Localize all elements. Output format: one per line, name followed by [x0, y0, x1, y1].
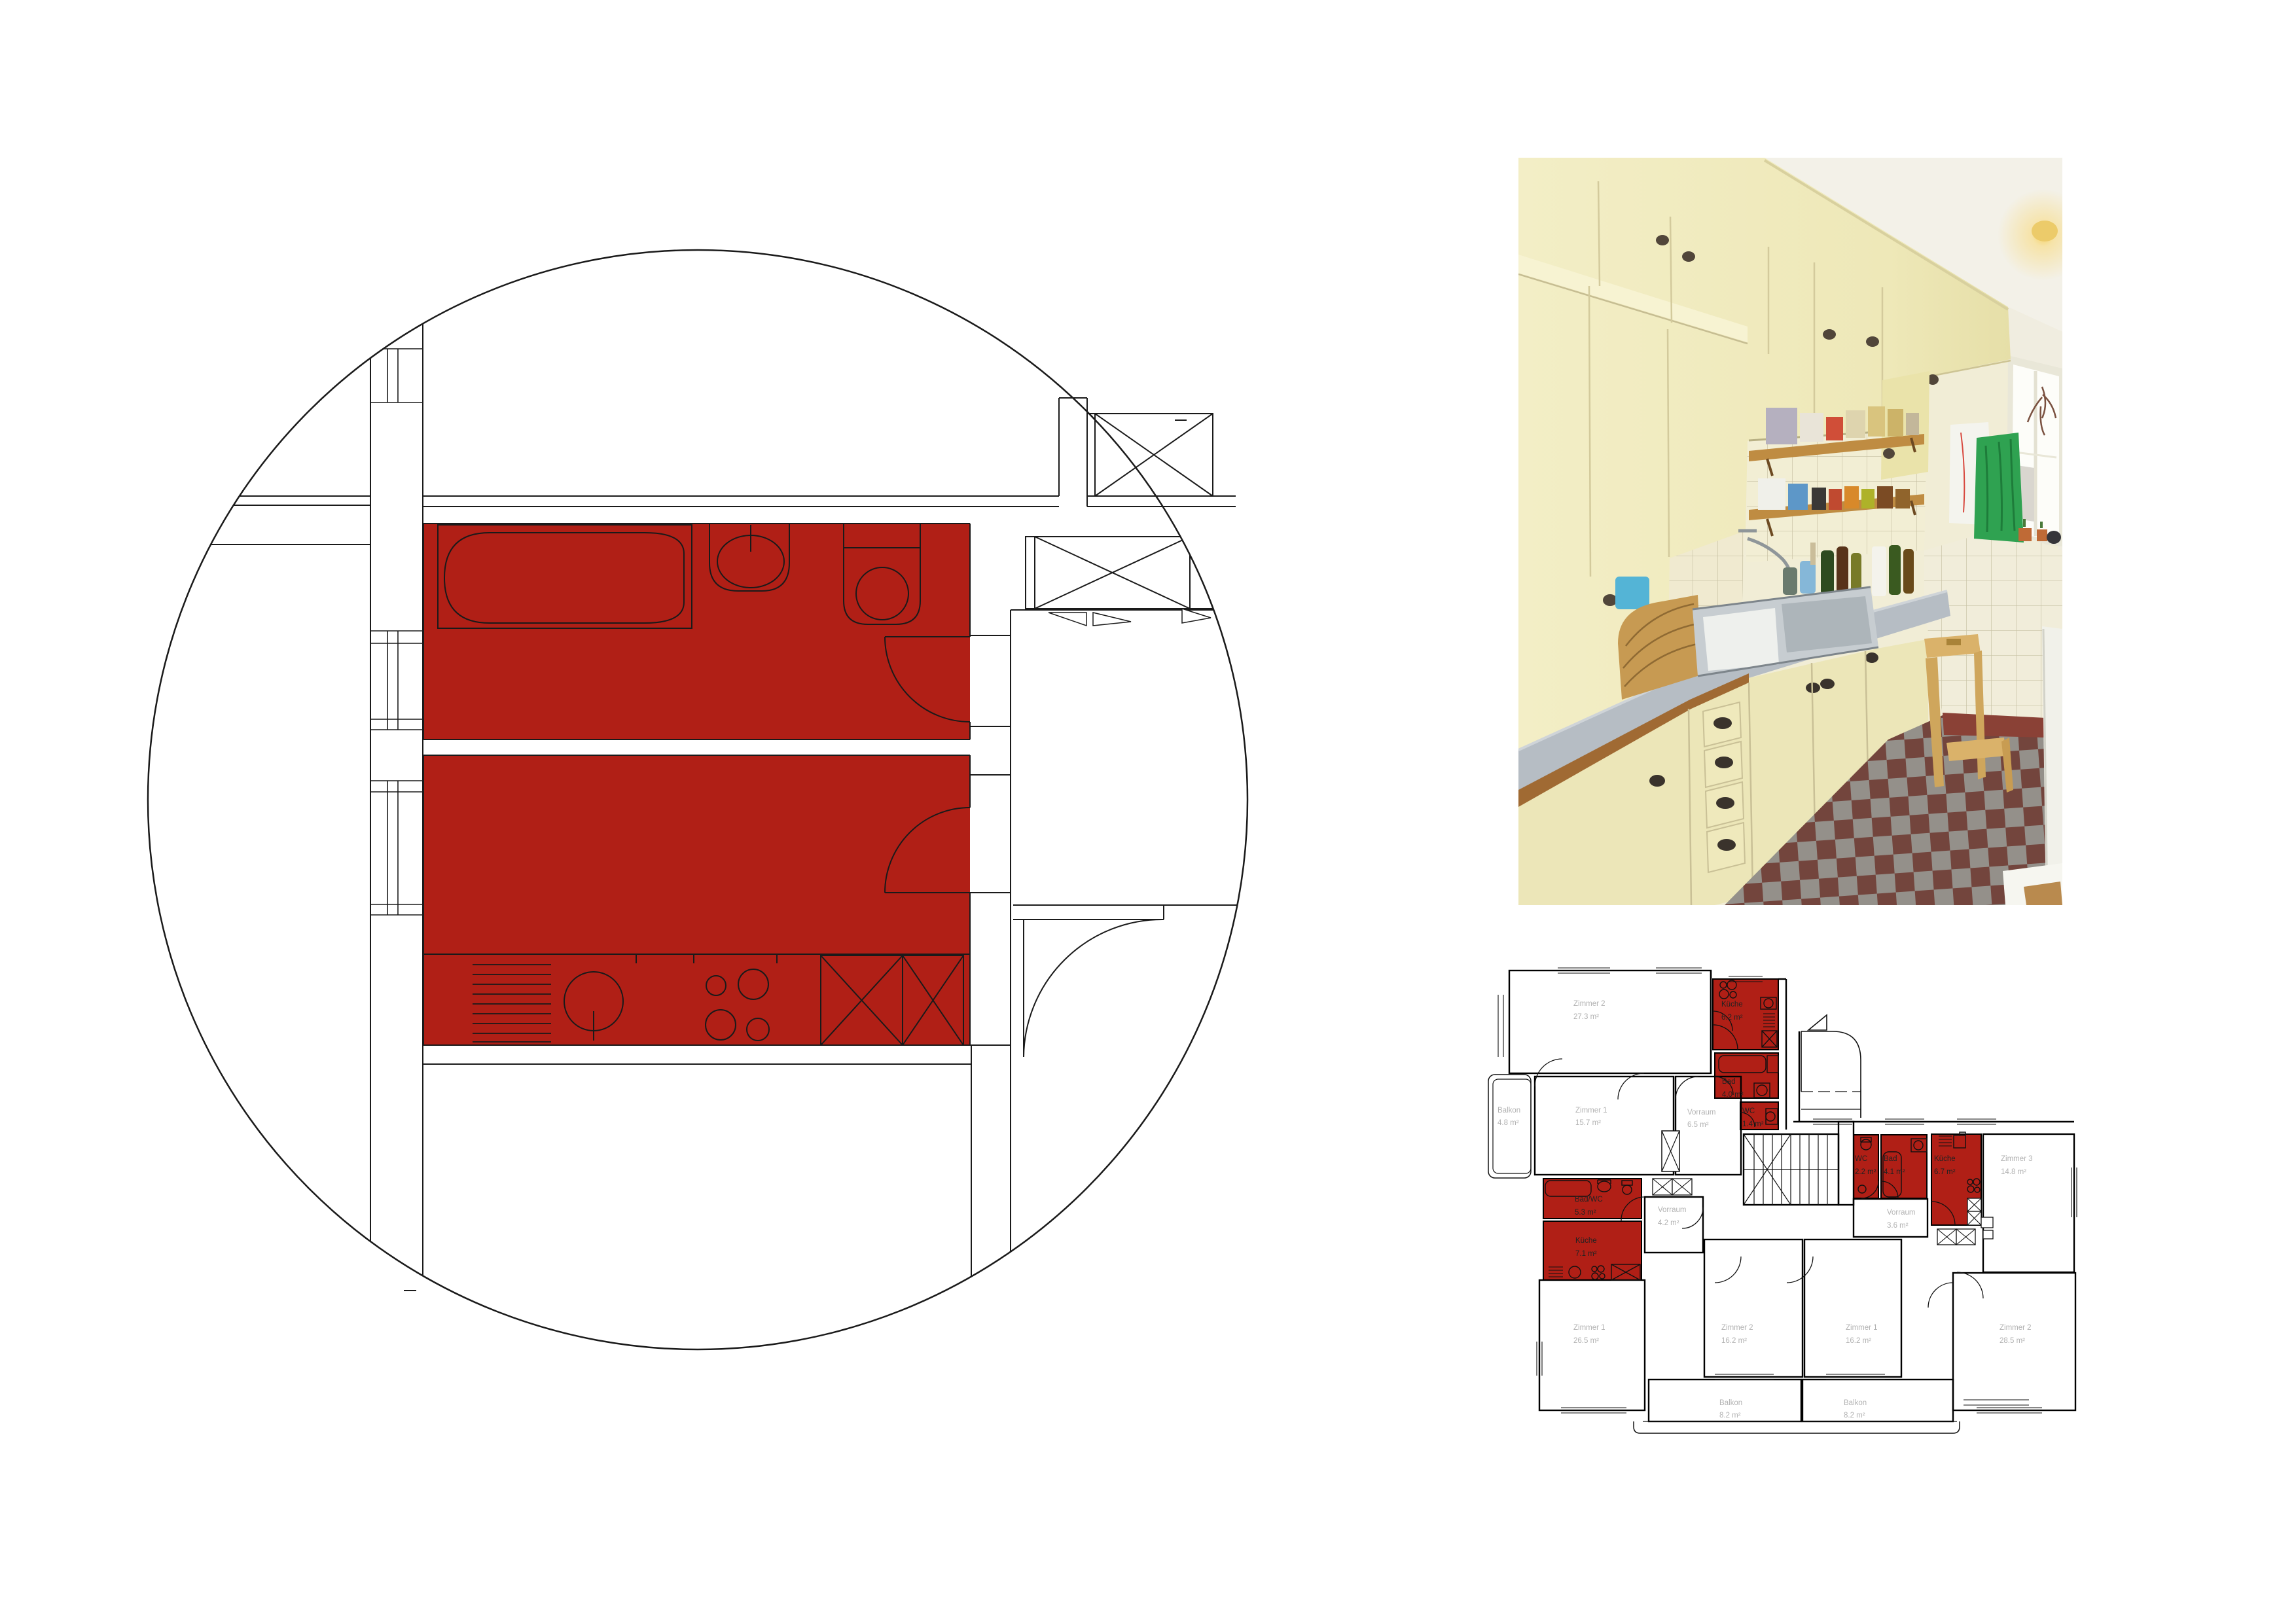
svg-text:27.3 m²: 27.3 m²: [1573, 1013, 1599, 1021]
svg-text:7.1 m²: 7.1 m²: [1575, 1250, 1597, 1258]
svg-text:3.6 m²: 3.6 m²: [1887, 1222, 1909, 1230]
svg-text:Zimmer 1: Zimmer 1: [1575, 1107, 1607, 1115]
svg-text:Zimmer 2: Zimmer 2: [1721, 1324, 1753, 1332]
svg-text:2.2 m²: 2.2 m²: [1855, 1168, 1876, 1176]
svg-text:5.3 m²: 5.3 m²: [1575, 1209, 1596, 1217]
svg-text:Küche: Küche: [1721, 1001, 1743, 1008]
svg-text:WC: WC: [1742, 1107, 1755, 1115]
svg-text:Balkon: Balkon: [1498, 1107, 1520, 1115]
svg-text:Bad: Bad: [1722, 1078, 1735, 1086]
svg-text:15.7 m²: 15.7 m²: [1575, 1119, 1601, 1127]
svg-text:Küche: Küche: [1934, 1155, 1956, 1163]
svg-text:4.0 m²: 4.0 m²: [1722, 1091, 1744, 1099]
svg-text:Zimmer 2: Zimmer 2: [1573, 1000, 1605, 1008]
svg-text:16.2 m²: 16.2 m²: [1721, 1337, 1747, 1345]
svg-text:Vorraum: Vorraum: [1887, 1209, 1915, 1217]
svg-text:8.2 m²: 8.2 m²: [1719, 1412, 1741, 1419]
svg-text:Zimmer 1: Zimmer 1: [1573, 1324, 1605, 1332]
svg-text:1.4 m²: 1.4 m²: [1742, 1120, 1764, 1128]
svg-text:Küche: Küche: [1575, 1237, 1597, 1245]
svg-text:6.5 m²: 6.5 m²: [1687, 1121, 1709, 1129]
svg-text:Vorraum: Vorraum: [1658, 1206, 1686, 1214]
svg-text:Balkon: Balkon: [1719, 1399, 1742, 1407]
svg-text:Balkon: Balkon: [1844, 1399, 1867, 1407]
svg-text:Bad: Bad: [1884, 1155, 1897, 1163]
svg-text:Vorraum: Vorraum: [1687, 1109, 1715, 1116]
svg-text:Zimmer 2: Zimmer 2: [2000, 1324, 2032, 1332]
svg-text:Zimmer 1: Zimmer 1: [1846, 1324, 1878, 1332]
svg-text:4.1 m²: 4.1 m²: [1884, 1168, 1905, 1176]
svg-text:WC: WC: [1855, 1155, 1867, 1163]
svg-text:Bad/WC: Bad/WC: [1575, 1196, 1603, 1204]
svg-text:16.2 m²: 16.2 m²: [1846, 1337, 1871, 1345]
svg-text:Zimmer 3: Zimmer 3: [2001, 1155, 2033, 1163]
svg-text:6.7 m²: 6.7 m²: [1934, 1168, 1956, 1176]
svg-text:4.8 m²: 4.8 m²: [1498, 1119, 1519, 1127]
svg-text:6.2 m²: 6.2 m²: [1721, 1014, 1743, 1022]
svg-text:26.5 m²: 26.5 m²: [1573, 1337, 1599, 1345]
svg-text:14.8 m²: 14.8 m²: [2001, 1168, 2026, 1176]
svg-text:28.5 m²: 28.5 m²: [2000, 1337, 2025, 1345]
svg-text:4.2 m²: 4.2 m²: [1658, 1219, 1679, 1227]
svg-text:8.2 m²: 8.2 m²: [1844, 1412, 1865, 1419]
